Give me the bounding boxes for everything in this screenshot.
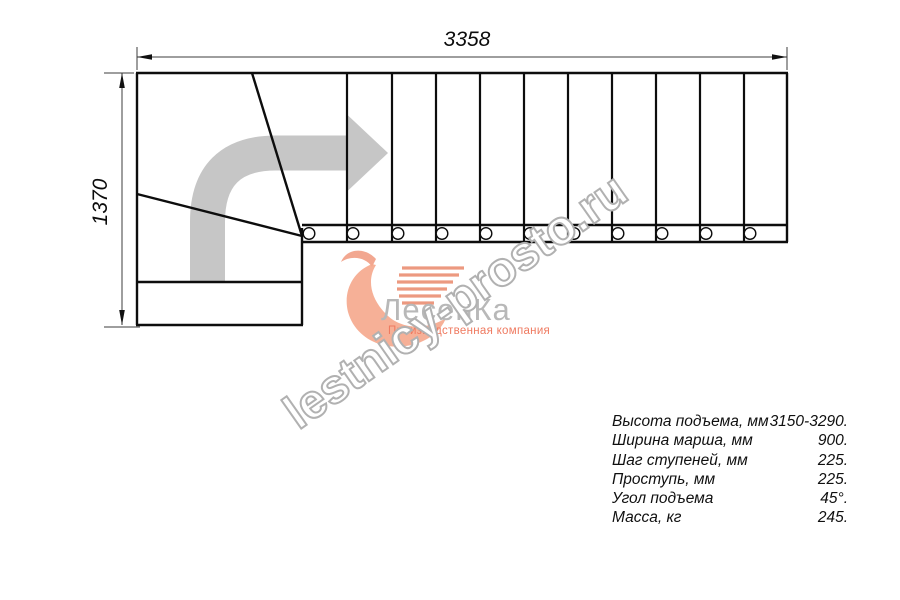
baluster-circle	[480, 228, 492, 240]
spec-row-height: Высота подъема, мм 3150-3290.	[612, 412, 848, 431]
stair-plan-canvas: 3358 1370 ЛесенКа Производственная компа…	[0, 0, 900, 600]
spec-value: 225.	[818, 451, 848, 470]
spec-row-tread-depth: Проступь, мм 225.	[612, 470, 848, 489]
baluster-circle	[392, 228, 404, 240]
spec-row-climb-angle: Угол подъема 45°.	[612, 489, 848, 508]
logo-tagline: Производственная компания	[388, 325, 550, 337]
arrowhead-up	[119, 73, 125, 88]
dimension-height-label: 1370	[81, 162, 121, 242]
tread-lines	[347, 73, 744, 242]
spec-label: Угол подъема	[612, 489, 713, 508]
baluster-circle	[744, 228, 756, 240]
spec-row-flight-width: Ширина марша, мм 900.	[612, 431, 848, 450]
spec-value: 45°.	[820, 489, 848, 508]
arrowhead-down	[119, 310, 125, 325]
arrowhead-left	[137, 54, 152, 60]
spec-label: Ширина марша, мм	[612, 431, 753, 450]
spec-label: Шаг ступеней, мм	[612, 451, 748, 470]
spec-row-step-pitch: Шаг ступеней, мм 225.	[612, 451, 848, 470]
spec-label: Масса, кг	[612, 508, 681, 527]
spec-label: Проступь, мм	[612, 470, 715, 489]
baluster-circle	[436, 228, 448, 240]
logo-company-name: ЛесенКа	[381, 292, 511, 328]
arrowhead-right	[772, 54, 787, 60]
baluster-circle	[656, 228, 668, 240]
spec-value: 900.	[818, 431, 848, 450]
spec-row-mass: Масса, кг 245.	[612, 508, 848, 527]
baluster-circle	[612, 228, 624, 240]
specs-table: Высота подъема, мм 3150-3290. Ширина мар…	[612, 412, 848, 528]
baluster-circle	[524, 228, 536, 240]
spec-value: 3150-3290.	[770, 412, 848, 431]
baluster-circle	[700, 228, 712, 240]
dimension-width-label: 3358	[427, 28, 507, 52]
baluster-circles	[303, 228, 756, 240]
spec-value: 225.	[818, 470, 848, 489]
baluster-circle	[568, 228, 580, 240]
baluster-circle	[303, 228, 315, 240]
staircase-outline	[136, 73, 788, 325]
spec-value: 245.	[818, 508, 848, 527]
spec-label: Высота подъема, мм	[612, 412, 769, 431]
baluster-circle	[347, 228, 359, 240]
